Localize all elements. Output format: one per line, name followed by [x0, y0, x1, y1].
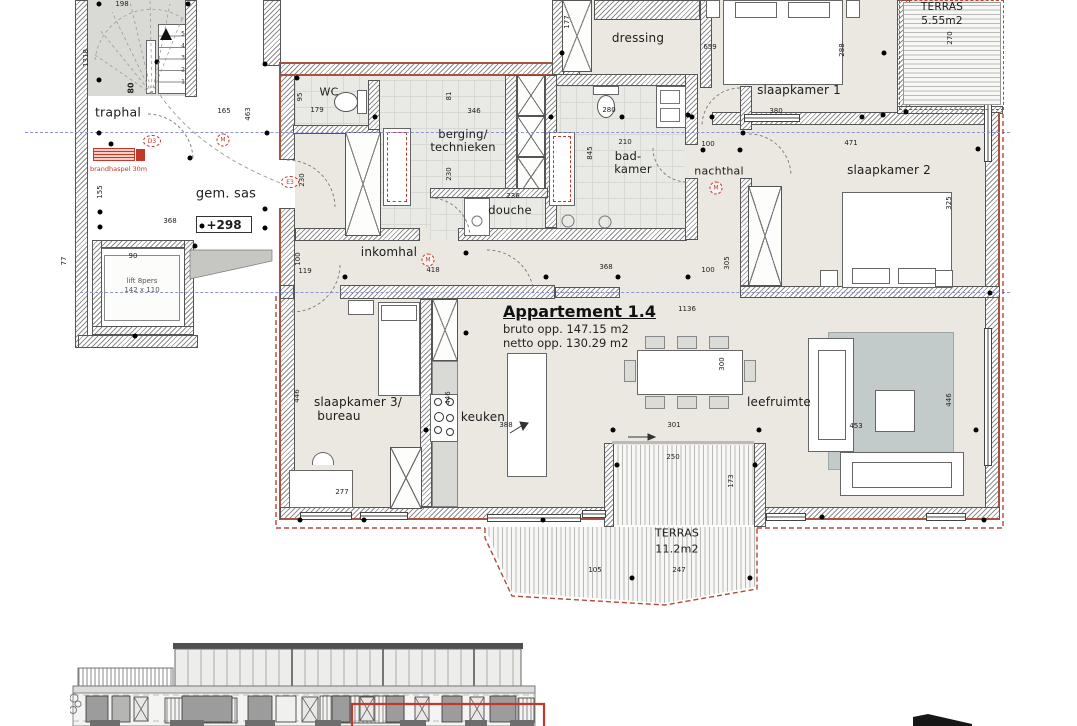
shower-tray: [464, 198, 490, 236]
dim-dot: [976, 147, 981, 152]
vent-tag-m: M: [217, 134, 230, 147]
floor-plan-canvas: 5 4 3 2 1 brandhaspel 30m lift 8pers 142…: [0, 0, 1077, 726]
wall: [92, 326, 194, 335]
dim-dot: [686, 275, 691, 280]
fire-hose-label: brandhaspel 30m: [90, 165, 147, 173]
dimension-label: 418: [426, 266, 439, 274]
floor-slab: [73, 686, 535, 693]
window: [766, 513, 806, 521]
pillow: [735, 2, 777, 18]
fire-hose-box: [136, 149, 145, 161]
dim-dot: [464, 331, 469, 336]
dimension-label: 659: [703, 43, 716, 51]
room-label-inkomhal: inkomhal: [361, 245, 417, 259]
dim-dot: [560, 51, 565, 56]
dim-dot: [820, 515, 825, 520]
dimension-label: 845: [586, 146, 594, 159]
nightstand: [820, 270, 838, 287]
dim-dot: [757, 428, 762, 433]
dimension-label: 471: [844, 139, 857, 147]
sofa-cushion: [818, 350, 846, 440]
dimension-label: 173: [727, 474, 735, 487]
dim-dot: [200, 224, 205, 229]
boiler-coil: [553, 136, 571, 202]
dim-dot: [343, 275, 348, 280]
toilet-tank: [593, 86, 619, 95]
dimension-label: 105: [588, 566, 601, 574]
chair: [645, 396, 665, 409]
dim-dot: [98, 210, 103, 215]
room-label-slaapkamer2: slaapkamer 2: [847, 163, 931, 177]
dim-dot: [373, 115, 378, 120]
dimension-label: 250: [666, 453, 679, 461]
boiler-coil: [387, 132, 407, 202]
kitchen-tall-cabinet: [432, 299, 458, 361]
building-elevation: [70, 640, 570, 726]
dim-dot: [974, 428, 979, 433]
toilet-tank: [357, 90, 367, 114]
dim-dot: [549, 115, 554, 120]
dim-dot: [97, 131, 102, 136]
dim-dot: [753, 463, 758, 468]
wall: [78, 335, 198, 348]
technical-unit: [345, 132, 381, 236]
dimension-label: 325: [945, 196, 953, 209]
closet: [594, 0, 700, 20]
room-label-badkamer2: kamer: [614, 162, 652, 176]
nightstand: [348, 300, 374, 315]
wall: [92, 240, 194, 248]
dimension-label: 301: [667, 421, 680, 429]
loggia-edge: [612, 441, 754, 444]
cutoff-shape: [913, 714, 972, 726]
dim-dot: [611, 428, 616, 433]
technical-shaft: [517, 75, 545, 116]
dim-dot: [988, 291, 993, 296]
apartment-title: Appartement 1.4: [503, 302, 656, 321]
roof-slab: [173, 643, 523, 649]
wardrobe: [562, 0, 592, 72]
lift-label-line1: lift 8pers: [124, 277, 159, 286]
room-label-gem-sas: gem. sas: [196, 187, 256, 202]
wardrobe: [748, 186, 782, 286]
dim-dot: [904, 110, 909, 115]
burner: [446, 428, 454, 436]
chair: [744, 360, 756, 382]
dimension-label: 90: [129, 252, 138, 260]
dim-dot: [630, 576, 635, 581]
dim-dot: [424, 428, 429, 433]
room-label-bureau: bureau: [317, 409, 360, 423]
pillow: [852, 268, 890, 284]
burner: [434, 426, 442, 434]
room-label-berging2: technieken: [430, 140, 495, 154]
vent-tag-m-text: M: [425, 257, 430, 264]
coffee-table: [875, 390, 915, 432]
dimension-label: 119: [298, 267, 311, 275]
dimension-label: 463: [244, 107, 252, 120]
vent-tag-m-text: M: [713, 185, 718, 192]
wall: [552, 74, 698, 86]
room-label-nachthal: nachthal: [694, 165, 743, 178]
burner: [434, 398, 442, 406]
dimension-label: 277: [335, 488, 348, 496]
dimension-label: 346: [467, 107, 480, 115]
door-tag-d3: D3: [143, 135, 161, 147]
chair: [624, 360, 636, 382]
dimension-label: 81: [445, 92, 453, 101]
dim-dot: [615, 463, 620, 468]
axis-line: [80, 292, 1010, 293]
apartment-bruto: bruto opp. 147.15 m2: [503, 322, 629, 336]
ramp-wedge: [190, 250, 272, 279]
dimension-label: 446: [293, 389, 301, 402]
dimension-label: 368: [163, 217, 176, 225]
dim-dot: [295, 76, 300, 81]
dim-dot: [265, 131, 270, 136]
exterior-wall: [280, 62, 580, 76]
dim-dot: [133, 334, 138, 339]
pillow: [898, 268, 936, 284]
window: [582, 510, 606, 518]
dimension-label: 453: [849, 422, 862, 430]
room-label-traphal: traphal: [95, 105, 141, 120]
dimension-label: 446: [444, 391, 452, 404]
dimension-label: 236: [506, 192, 519, 200]
dining-table: [637, 350, 743, 395]
wall: [685, 178, 698, 240]
wall: [740, 86, 752, 130]
dim-dot: [263, 226, 268, 231]
dimension-label: 230: [445, 167, 453, 180]
room-label-douche: douche: [488, 203, 532, 217]
lift-label-line2: 142 x 110: [124, 286, 159, 295]
sink: [660, 108, 680, 122]
room-label-badkamer: bad-: [615, 149, 642, 163]
room-label-slaapkamer1: slaapkamer 1: [757, 83, 841, 97]
pillow: [788, 2, 830, 18]
dimension-label: 155: [96, 185, 104, 198]
terrace-bottom-label: TERRAS: [655, 527, 699, 540]
wall: [505, 75, 517, 197]
dimension-label: 100: [701, 266, 714, 274]
wall: [368, 80, 380, 130]
roof-terrace: [78, 668, 173, 686]
room-label-slaapkamer3: slaapkamer 3/: [314, 395, 402, 409]
dim-dot: [298, 518, 303, 523]
dim-dot: [620, 115, 625, 120]
nightstand: [846, 0, 860, 18]
chair: [677, 396, 697, 409]
dimension-label: 368: [599, 263, 612, 271]
dim-dot: [741, 131, 746, 136]
door-tag-e3: E3: [281, 176, 299, 188]
wall: [754, 443, 766, 527]
sofa-cushion: [852, 462, 952, 488]
burner: [446, 414, 454, 422]
wall: [185, 0, 197, 97]
dim-dot: [541, 518, 546, 523]
wall: [184, 240, 194, 335]
terrace-top-label: TERRAS: [921, 1, 963, 13]
dimension-label: 305: [723, 256, 731, 269]
dim-dot: [98, 225, 103, 230]
kitchen-island: [507, 353, 547, 477]
chair: [645, 336, 665, 349]
burner: [434, 412, 444, 422]
stair-core: [146, 40, 156, 94]
dimension-label: 388: [499, 421, 512, 429]
dim-dot: [193, 244, 198, 249]
apartment-netto: netto opp. 130.29 m2: [503, 336, 628, 350]
chair: [709, 336, 729, 349]
dimension-label: 179: [310, 106, 323, 114]
wall: [685, 74, 698, 145]
dim-dot: [188, 156, 193, 161]
dim-dot: [881, 113, 886, 118]
dim-dot: [97, 2, 102, 7]
wall: [263, 0, 281, 66]
nightstand: [706, 0, 720, 18]
window: [360, 512, 408, 520]
window: [300, 512, 352, 520]
dimension-label: 77: [60, 257, 68, 266]
door-tag-d3-text: D3: [148, 138, 156, 145]
room-label-berging: berging/: [438, 127, 487, 141]
dim-dot: [860, 115, 865, 120]
dim-dot: [464, 251, 469, 256]
sliding-door: [487, 514, 581, 522]
dim-dot: [748, 576, 753, 581]
dim-dot: [738, 148, 743, 153]
room-label-leefruimte: leefruimte: [747, 395, 811, 409]
dim-dot: [263, 62, 268, 67]
axis-line: [25, 132, 1010, 133]
dimension-label: 247: [672, 566, 685, 574]
dimension-label: 1136: [678, 305, 696, 313]
pillow: [381, 305, 417, 321]
chair: [709, 396, 729, 409]
dim-dot: [982, 518, 987, 523]
door-tag-e3-text: E3: [286, 179, 294, 186]
dim-dot: [263, 207, 268, 212]
terrace-bottom-deck: [485, 527, 757, 603]
room-label-dressing: dressing: [612, 31, 664, 45]
dim-dot: [109, 142, 114, 147]
dimension-label: 446: [945, 393, 953, 406]
room-label-wc: WC: [320, 86, 339, 99]
vent-tag-m-text: M: [220, 137, 225, 144]
dimension-label: 288: [838, 43, 846, 56]
wall: [430, 188, 548, 198]
dimension-label: 1318: [82, 49, 90, 67]
dim-dot: [710, 115, 715, 120]
exterior-wall: [279, 62, 295, 160]
dim-dot: [701, 148, 706, 153]
dim-dot: [616, 275, 621, 280]
dim-dot: [882, 51, 887, 56]
window: [744, 114, 800, 122]
dimension-label: 100: [294, 252, 302, 265]
dimension-label: 380: [769, 107, 782, 115]
dim-dot: [155, 60, 160, 65]
nightstand: [935, 270, 953, 287]
window: [926, 513, 966, 521]
technical-shaft: [517, 116, 545, 157]
fire-hose-reel: [93, 148, 135, 161]
dim-dot: [544, 275, 549, 280]
vent-tag-m: M: [422, 254, 435, 267]
sink: [660, 90, 680, 104]
dimension-label: 198: [115, 0, 128, 8]
dimension-label: 300: [718, 357, 726, 370]
dim-dot: [362, 518, 367, 523]
window: [984, 328, 992, 466]
dim-dot: [186, 2, 191, 7]
dimension-label: 210: [618, 138, 631, 146]
level-value: +298: [206, 218, 241, 232]
dimension-label: 95: [296, 93, 304, 102]
wardrobe: [390, 447, 422, 509]
wall: [458, 228, 687, 241]
terrace-top-area: 5.55m2: [921, 15, 963, 27]
dim-dot: [686, 113, 691, 118]
chair: [677, 336, 697, 349]
dimension-label: 177: [563, 15, 571, 28]
dimension-label: 165: [217, 107, 230, 115]
dimension-label: 80: [127, 82, 136, 93]
dimension-label: 230: [298, 173, 306, 186]
dimension-label: 280: [602, 106, 615, 114]
vent-tag-m: M: [710, 182, 723, 195]
wall: [92, 240, 102, 335]
dim-dot: [97, 78, 102, 83]
terrace-bottom-area: 11.2m2: [655, 543, 698, 556]
dimension-label: 270: [946, 31, 954, 44]
